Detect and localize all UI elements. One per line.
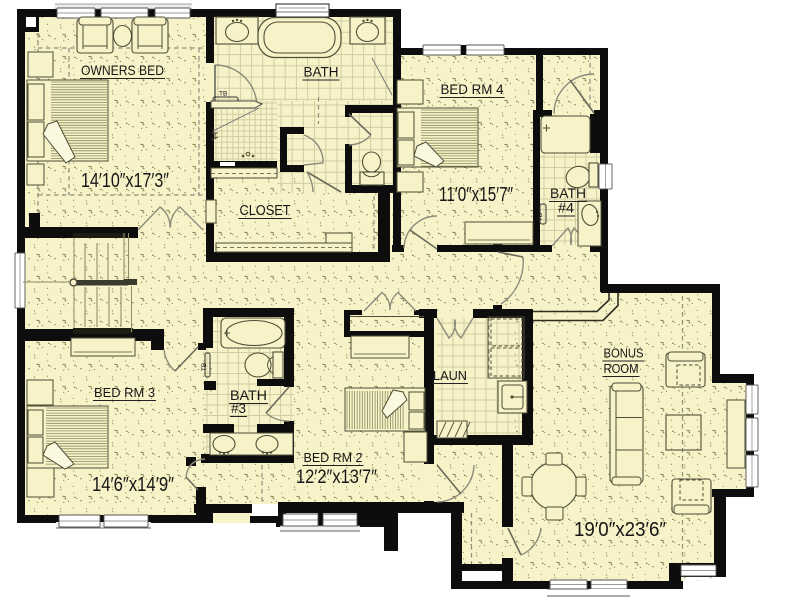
svg-text:BONUS: BONUS xyxy=(604,346,644,361)
svg-text:TB: TB xyxy=(537,213,544,221)
svg-text:ROOM: ROOM xyxy=(604,361,639,376)
svg-text:BED RM 4: BED RM 4 xyxy=(441,81,504,97)
svg-text:BED RM 2: BED RM 2 xyxy=(304,450,363,465)
svg-text:OWNERS BED: OWNERS BED xyxy=(81,62,164,78)
svg-text:14′6″x14′9″: 14′6″x14′9″ xyxy=(92,474,174,496)
svg-text:BED RM 3: BED RM 3 xyxy=(94,385,155,400)
svg-text:BATH: BATH xyxy=(304,64,339,80)
svg-text:CLOSET: CLOSET xyxy=(240,202,291,219)
svg-text:#3: #3 xyxy=(231,400,246,416)
svg-text:19′0″x23′6″: 19′0″x23′6″ xyxy=(574,519,666,541)
svg-text:TB: TB xyxy=(201,363,208,371)
svg-text:TB: TB xyxy=(219,91,227,98)
svg-text:#4: #4 xyxy=(558,200,574,216)
svg-text:11′0″x15′7″: 11′0″x15′7″ xyxy=(439,184,513,206)
svg-text:LAUN: LAUN xyxy=(433,368,467,383)
svg-text:12′2″x13′7″: 12′2″x13′7″ xyxy=(296,467,377,488)
svg-text:14′10″x17′3″: 14′10″x17′3″ xyxy=(81,170,169,192)
